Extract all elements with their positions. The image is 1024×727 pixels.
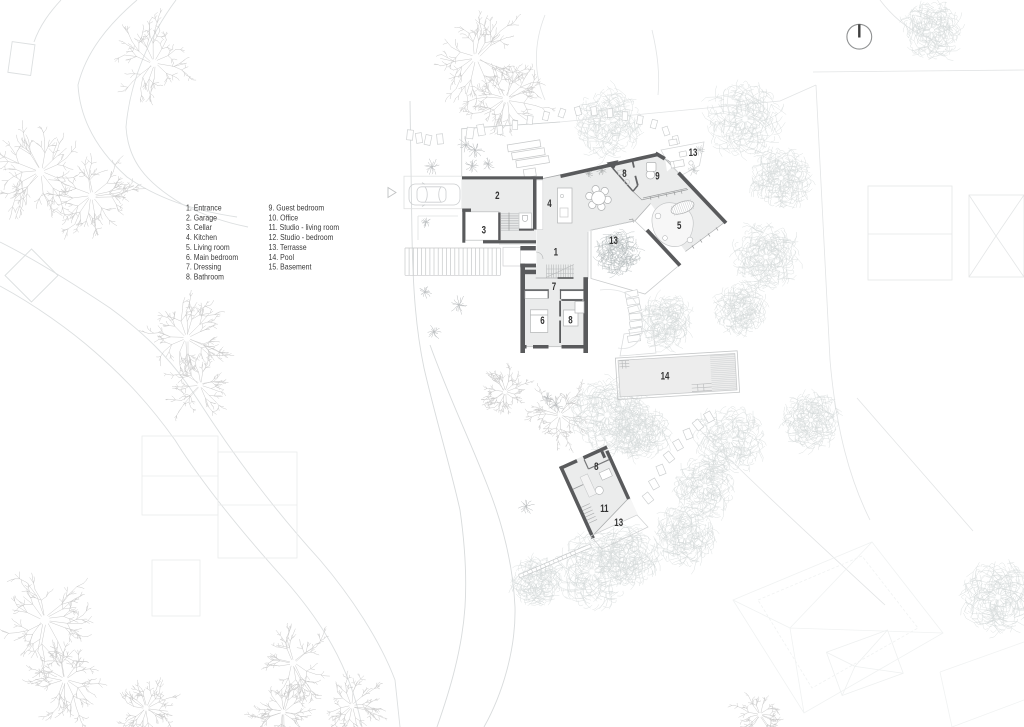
svg-text:13: 13 — [614, 517, 623, 530]
svg-text:8. Bathroom: 8. Bathroom — [186, 272, 224, 282]
svg-text:13: 13 — [609, 235, 618, 248]
svg-text:8: 8 — [594, 461, 599, 474]
svg-text:15. Basement: 15. Basement — [269, 262, 313, 272]
svg-text:9: 9 — [655, 170, 659, 183]
svg-text:7. Dressing: 7. Dressing — [186, 262, 221, 272]
svg-text:13. Terrasse: 13. Terrasse — [269, 242, 307, 252]
svg-text:13: 13 — [689, 147, 698, 160]
svg-text:6. Main bedroom: 6. Main bedroom — [186, 252, 238, 262]
svg-text:11: 11 — [600, 503, 609, 516]
svg-text:5: 5 — [677, 220, 682, 233]
svg-text:4. Kitchen: 4. Kitchen — [186, 233, 217, 243]
svg-text:10. Office: 10. Office — [269, 213, 299, 223]
svg-text:8: 8 — [622, 168, 627, 181]
svg-text:1. Entrance: 1. Entrance — [186, 203, 222, 213]
svg-text:14. Pool: 14. Pool — [269, 252, 295, 262]
svg-text:7: 7 — [552, 281, 556, 294]
svg-text:1: 1 — [554, 246, 559, 259]
svg-text:11. Studio - living room: 11. Studio - living room — [269, 223, 340, 233]
svg-text:9. Guest bedroom: 9. Guest bedroom — [269, 203, 325, 213]
svg-text:3. Cellar: 3. Cellar — [186, 223, 212, 233]
svg-text:5. Living room: 5. Living room — [186, 242, 230, 252]
svg-text:6: 6 — [540, 315, 544, 328]
svg-text:3: 3 — [482, 224, 486, 237]
svg-text:12. Studio - bedroom: 12. Studio - bedroom — [269, 233, 334, 243]
svg-text:8: 8 — [568, 314, 573, 327]
svg-text:2. Garage: 2. Garage — [186, 213, 217, 223]
svg-text:14: 14 — [661, 370, 670, 383]
svg-text:2: 2 — [495, 190, 499, 203]
svg-text:4: 4 — [547, 198, 552, 211]
